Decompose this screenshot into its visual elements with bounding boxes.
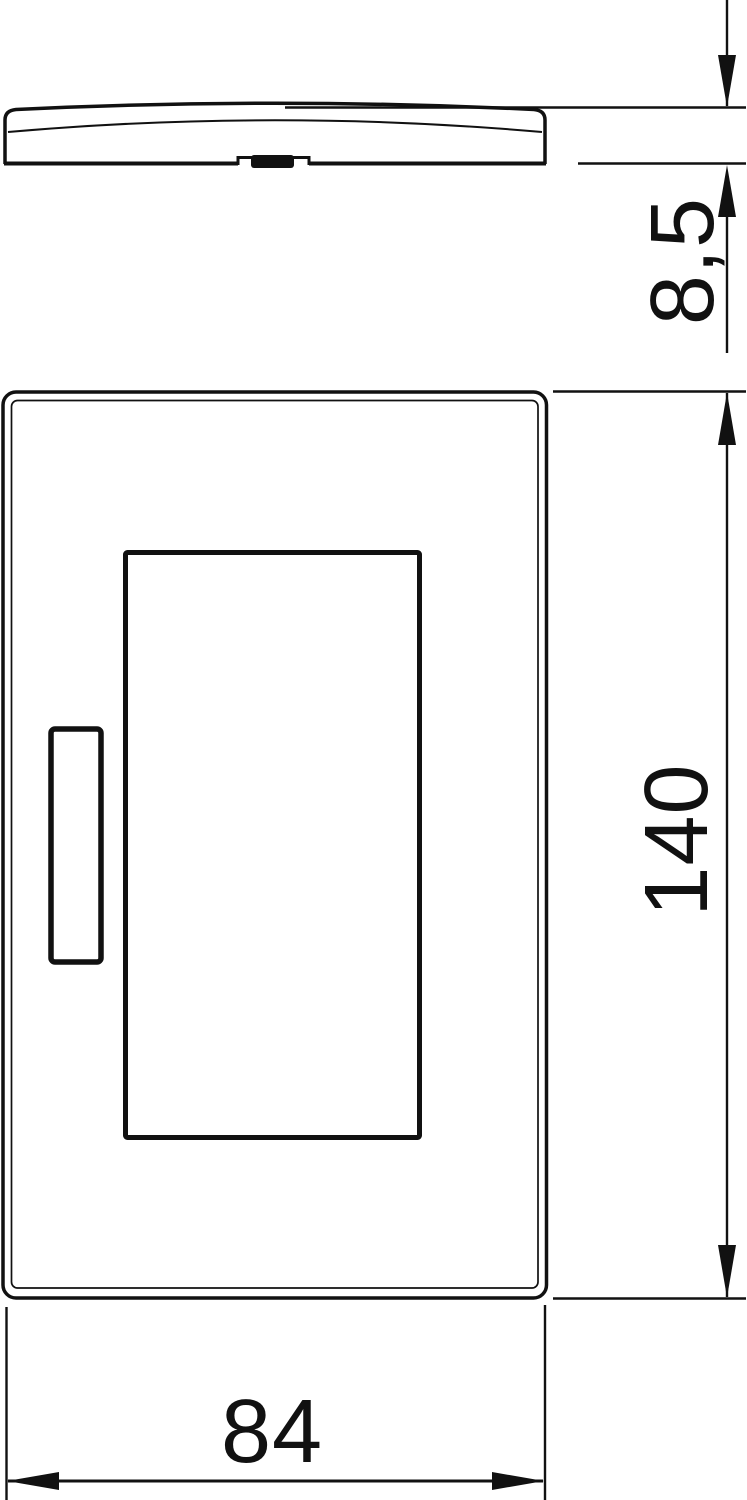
- front-outer-outline: [3, 392, 547, 1298]
- profile-mount-tab: [251, 155, 294, 168]
- dimension-8-5: 8,5: [285, 0, 746, 353]
- arrowhead-down-icon: [718, 55, 736, 107]
- dimension-140: 140: [553, 392, 746, 1299]
- front-view: [3, 392, 547, 1298]
- dimension-drawing-svg: 8,5 140 84: [0, 0, 747, 1500]
- profile-dome-inner-arc: [8, 120, 542, 132]
- profile-view: [4, 103, 546, 168]
- arrowhead-right-icon: [492, 1472, 544, 1490]
- technical-drawing-canvas: 8,5 140 84: [0, 0, 747, 1500]
- dim-text-84: 84: [221, 1382, 323, 1482]
- arrowhead-up-icon: [718, 393, 736, 446]
- front-inner-edge-line: [12, 401, 539, 1289]
- dim-text-140: 140: [627, 763, 727, 916]
- dim-text-8-5: 8,5: [633, 197, 733, 325]
- device-opening-rect: [126, 553, 420, 1138]
- dimension-84: 84: [7, 1305, 546, 1500]
- arrowhead-left-icon: [7, 1472, 59, 1490]
- arrowhead-down-icon: [718, 1245, 736, 1298]
- profile-outer-outline: [5, 103, 545, 164]
- side-slot-rect: [51, 729, 101, 962]
